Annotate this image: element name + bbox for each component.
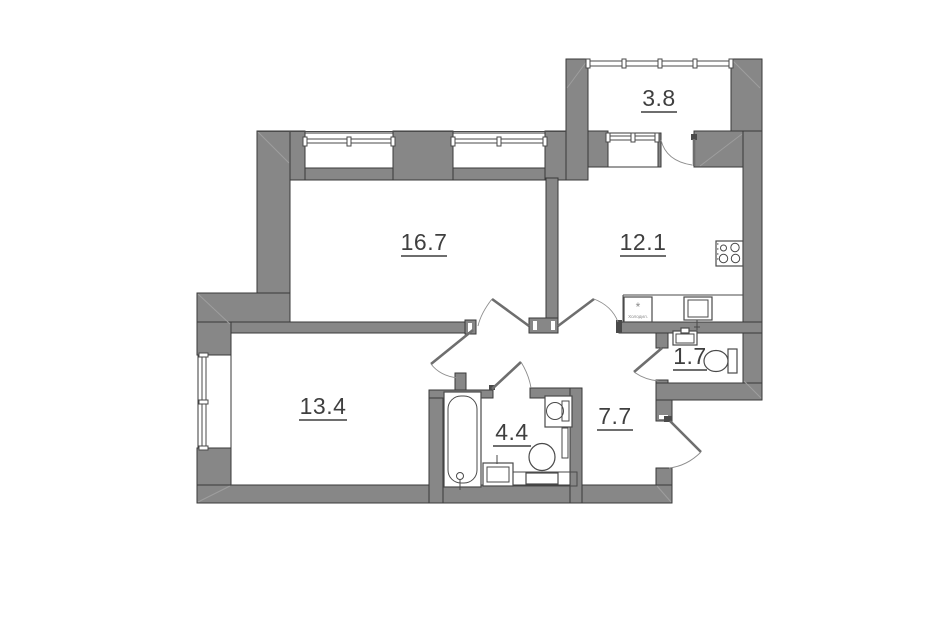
window-tick (199, 400, 208, 404)
balcony-left-wall (566, 59, 588, 180)
entry-door-leaf (670, 421, 701, 452)
window-tick (693, 59, 697, 68)
wc-wall-stub (656, 333, 668, 348)
wall-segment (305, 168, 393, 180)
washing-machine-icon (545, 396, 572, 427)
room-label-bathroom: 4.4 (495, 419, 528, 445)
entry-door-arc (669, 452, 701, 468)
wall-segment (393, 131, 453, 180)
floor-plan-canvas: * Холодил. (0, 0, 941, 617)
room-label-bedroom: 13.4 (300, 393, 347, 419)
window-tick (729, 59, 733, 68)
left-outer-wall-lower (197, 322, 231, 355)
window-tick (586, 59, 590, 68)
room-label-hallway: 7.7 (598, 403, 631, 429)
room-label-wc: 1.7 (673, 343, 706, 369)
wc-bottom-wall (656, 383, 762, 400)
wall-segment (546, 178, 558, 318)
window-tick (655, 133, 659, 142)
window-tick (606, 133, 610, 142)
window-tick (631, 133, 635, 142)
room-label-kitchen: 12.1 (620, 229, 667, 255)
window-tick (391, 137, 395, 146)
bathtub-icon (444, 392, 481, 490)
right-outer-wall (743, 131, 762, 400)
fridge-icon: * Холодил. (624, 297, 652, 322)
window-tick (451, 137, 455, 146)
bathroom-door-arc (521, 362, 531, 388)
window-tick (543, 137, 547, 146)
living-door-arc (478, 299, 492, 326)
bathroom-sink-icon (483, 455, 513, 486)
window-tick (347, 137, 351, 146)
window-tick (622, 59, 626, 68)
room-label-living-room: 16.7 (401, 229, 448, 255)
balcony-right-wall (731, 59, 762, 133)
jamb-slit (551, 321, 555, 330)
wall-segment (231, 322, 465, 333)
entry-wall-stub (656, 468, 672, 485)
fridge-symbol: * (636, 300, 641, 314)
wall-segment (453, 168, 545, 180)
window-tick (497, 137, 501, 146)
jamb-slit (533, 321, 537, 330)
wc-door-leaf (634, 348, 662, 372)
kitchen-door-leaf (558, 299, 594, 326)
wall-segment (545, 131, 566, 180)
wall-segment (588, 131, 608, 167)
living-door-leaf (492, 299, 529, 326)
bedroom-door-leaf (431, 330, 473, 364)
window-tick (199, 353, 208, 357)
wc-door-arc (634, 372, 659, 381)
bathroom-door-leaf (492, 362, 521, 389)
toilet-icon (704, 349, 737, 373)
door-jamb-stub (455, 373, 466, 390)
door-jamb-nub (616, 320, 622, 333)
window-tick (199, 446, 208, 450)
window-tick (658, 59, 662, 68)
room-label-balcony: 3.8 (642, 85, 675, 111)
window-tick (303, 137, 307, 146)
kitchen-door-arc (594, 299, 618, 322)
floor-plan-drawing: * Холодил. (0, 0, 941, 617)
balcony-door-arc (661, 140, 692, 165)
bathroom-left-wall (429, 390, 443, 503)
bedroom-door-arc (431, 364, 458, 378)
toilet-icon (513, 444, 577, 487)
stove-icon (716, 241, 743, 266)
wall-step-block (197, 293, 290, 325)
fridge-label: Холодил. (628, 314, 648, 319)
duct-icon (562, 428, 568, 458)
